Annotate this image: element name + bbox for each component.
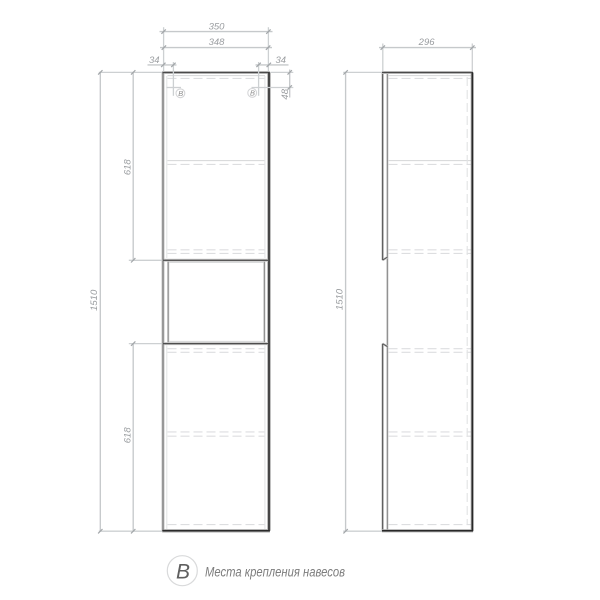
svg-text:34: 34 <box>149 55 160 66</box>
svg-text:В: В <box>178 89 183 98</box>
svg-text:350: 350 <box>209 21 226 32</box>
svg-text:296: 296 <box>418 37 436 48</box>
svg-text:В: В <box>250 89 255 98</box>
svg-text:618: 618 <box>122 427 133 444</box>
svg-text:Места крепления навесов: Места крепления навесов <box>205 565 345 580</box>
svg-text:В: В <box>176 560 190 583</box>
svg-text:48: 48 <box>280 88 291 99</box>
svg-text:34: 34 <box>276 55 287 66</box>
svg-text:618: 618 <box>122 159 133 176</box>
svg-text:1510: 1510 <box>334 288 345 310</box>
svg-text:348: 348 <box>209 37 226 48</box>
svg-text:1510: 1510 <box>89 289 100 311</box>
